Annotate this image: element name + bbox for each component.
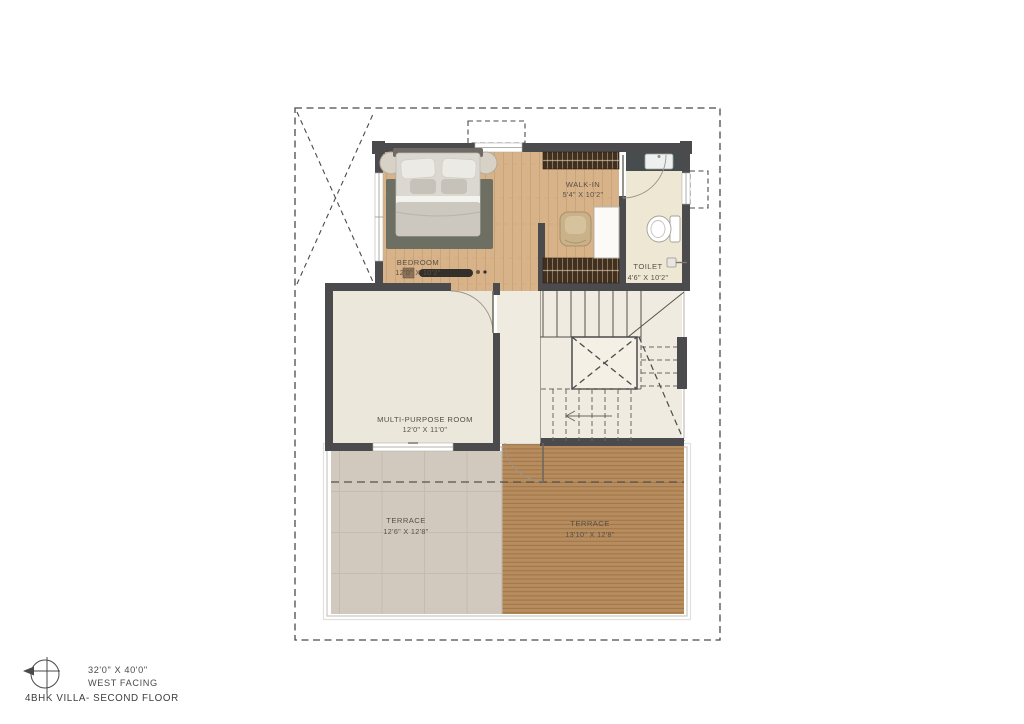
wardrobe-top <box>543 152 619 169</box>
floor-plan-canvas: BEDROOM 12'0" X 10'2" WALK-IN 5'4" X 10'… <box>0 0 1024 724</box>
wardrobe-bottom <box>543 258 619 283</box>
dresser <box>594 207 619 258</box>
balcony-projection-top <box>468 121 525 143</box>
plot-size-label: 32'0" X 40'0" <box>88 665 148 675</box>
bedroom-label: BEDROOM <box>397 258 439 267</box>
multi-purpose-size: 12'0" X 11'0" <box>403 425 448 434</box>
facing-label: WEST FACING <box>88 678 158 688</box>
bedroom-size: 12'0" X 10'2" <box>395 268 440 277</box>
washbasin-counter <box>626 152 682 171</box>
balcony-projection-right <box>690 171 708 208</box>
terrace-right-floor <box>502 444 684 614</box>
walk-in-label: WALK-IN <box>566 180 601 189</box>
compass-west-icon <box>23 657 60 694</box>
wc-toilet <box>647 216 680 242</box>
window-right <box>682 173 690 204</box>
chair <box>560 212 591 246</box>
terrace-left-size: 12'6" X 12'8" <box>383 527 428 536</box>
floor-plan: BEDROOM 12'0" X 10'2" WALK-IN 5'4" X 10'… <box>0 0 1024 724</box>
window-left <box>375 173 383 261</box>
terrace-right-label: TERRACE <box>570 519 609 528</box>
plan-title: 4BHK VILLA- SECOND FLOOR <box>25 693 179 704</box>
walk-in-size: 5'4" X 10'2" <box>563 190 604 199</box>
multi-purpose-label: MULTI-PURPOSE ROOM <box>377 415 473 424</box>
stair-void <box>572 337 637 389</box>
terrace-left-label: TERRACE <box>386 516 425 525</box>
toilet-label: TOILET <box>633 262 662 271</box>
legend: 32'0" X 40'0" WEST FACING 4BHK VILLA- SE… <box>23 657 179 704</box>
window-multi-purpose <box>373 443 453 451</box>
terrace-right-size: 13'10" X 12'8" <box>565 530 615 539</box>
toilet-size: 4'6" X 10'2" <box>628 273 669 282</box>
bed <box>393 148 483 236</box>
